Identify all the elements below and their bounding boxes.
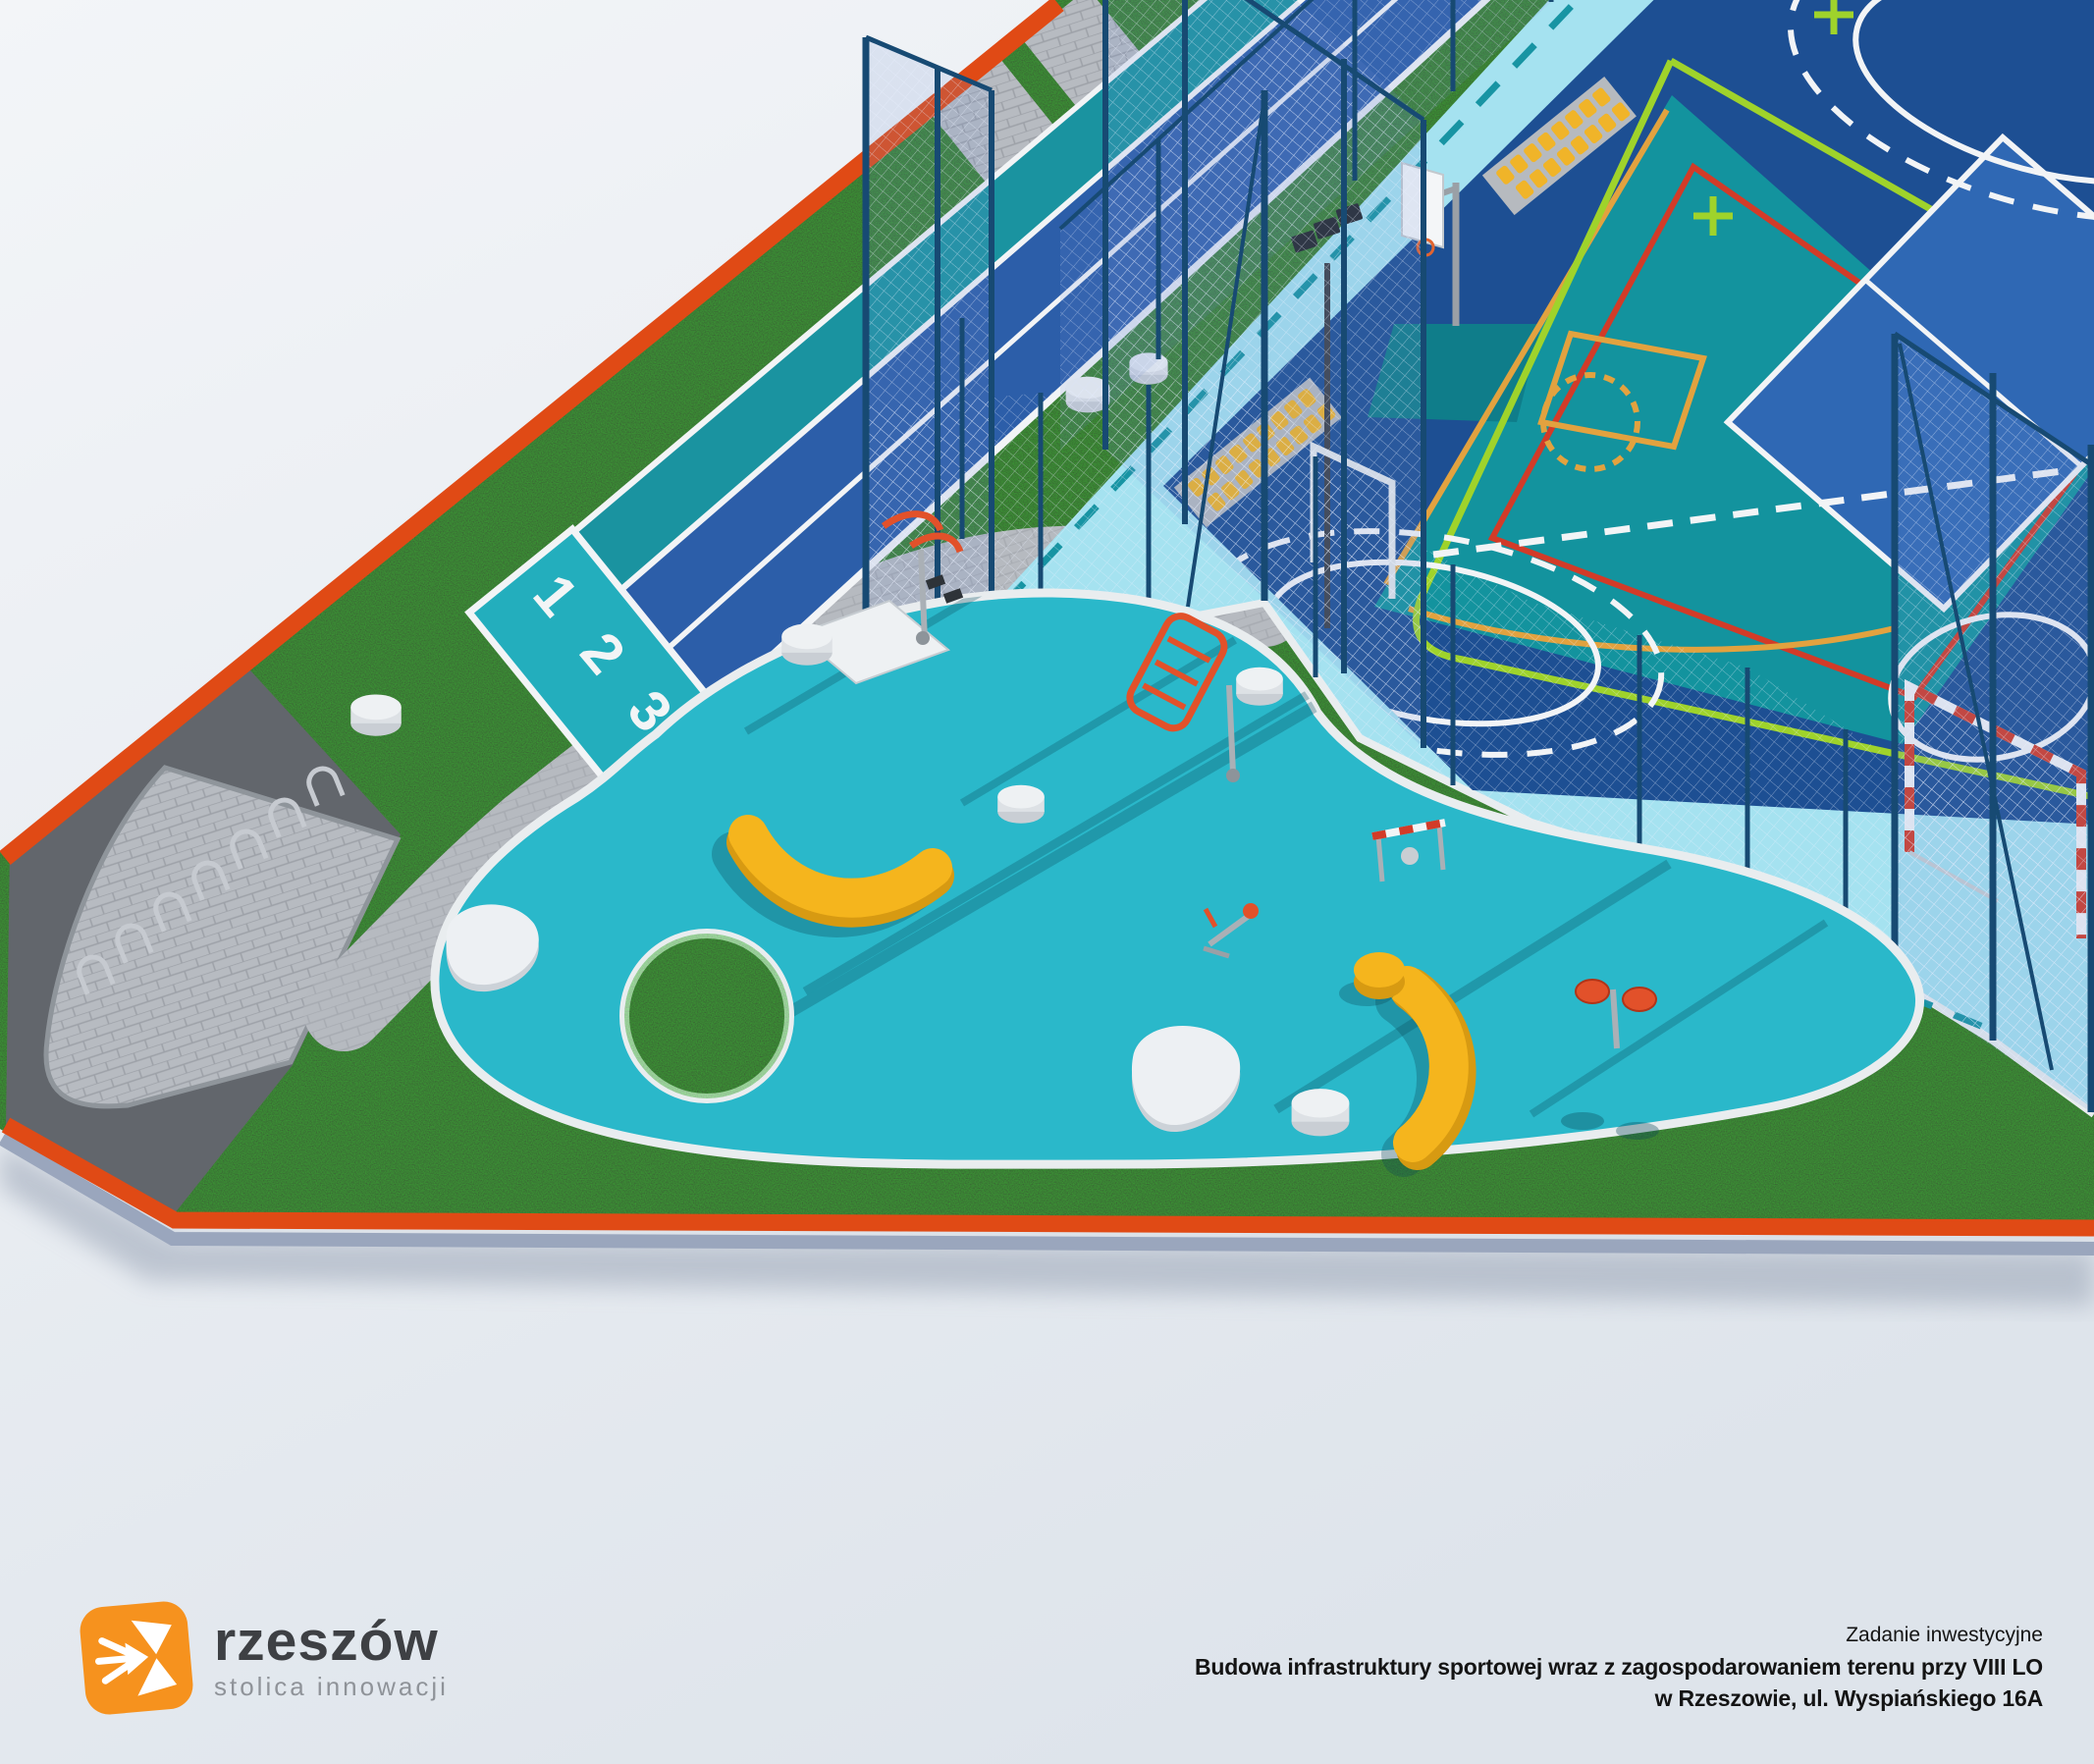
- concrete-stool: [1292, 1089, 1350, 1136]
- rzeszow-logo-icon: [77, 1598, 196, 1718]
- footer-brand: rzeszów stolica innowacji: [77, 1598, 449, 1718]
- concrete-stool: [781, 623, 832, 665]
- brand-text: rzeszów stolica innowacji: [214, 1614, 449, 1702]
- concrete-stool: [997, 785, 1045, 824]
- brand-name: rzeszów: [214, 1614, 449, 1670]
- concrete-stool: [1236, 668, 1283, 706]
- render-canvas: 1 2 3: [0, 0, 2094, 1764]
- project-label: Zadanie inwestycyjne: [1195, 1620, 2043, 1651]
- project-caption: Zadanie inwestycyjne Budowa infrastruktu…: [1195, 1620, 2043, 1714]
- concrete-stool: [350, 694, 402, 735]
- site-visualization: 1 2 3: [0, 0, 2094, 1764]
- project-title-line-2: w Rzeszowie, ul. Wyspiańskiego 16A: [1195, 1683, 2043, 1714]
- brand-tagline: stolica innowacji: [214, 1672, 449, 1702]
- project-title-line-1: Budowa infrastruktury sportowej wraz z z…: [1195, 1651, 2043, 1683]
